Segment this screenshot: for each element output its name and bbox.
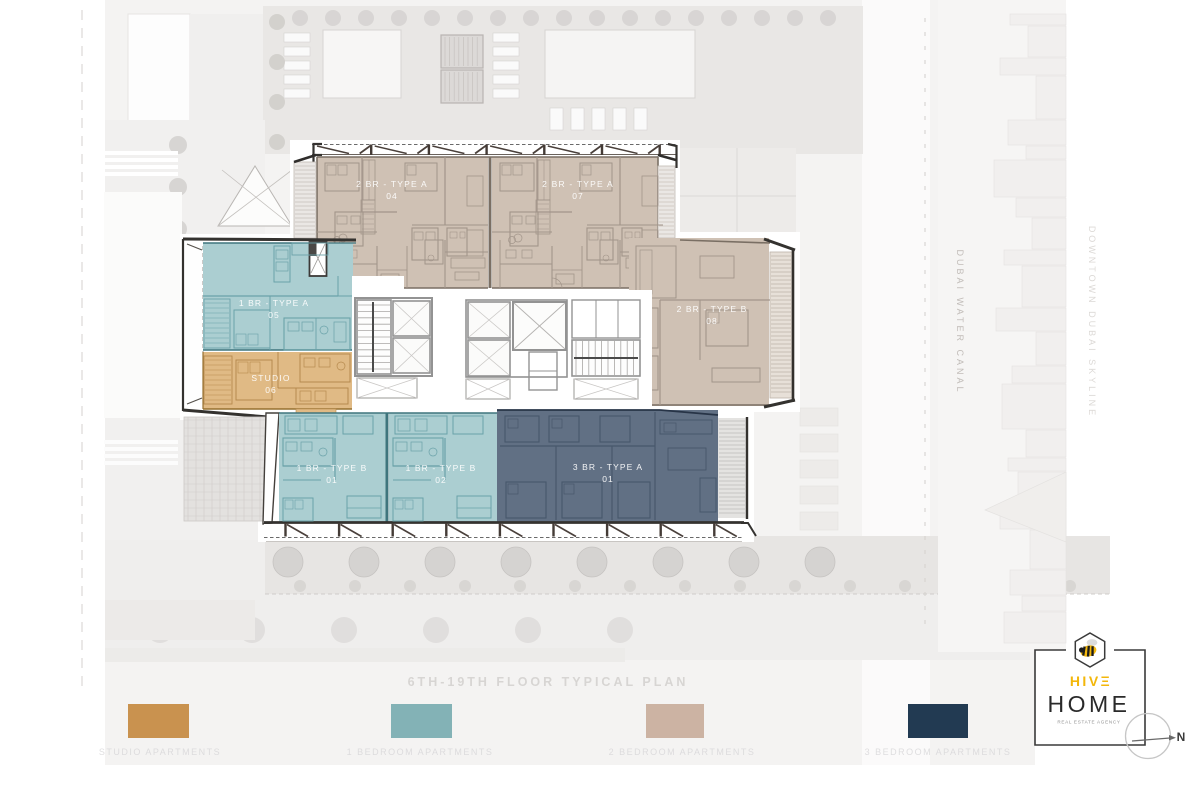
svg-text:DUBAI WATER CANAL: DUBAI WATER CANAL xyxy=(955,249,965,394)
svg-text:05: 05 xyxy=(268,310,279,320)
svg-text:06: 06 xyxy=(265,385,276,395)
svg-text:01: 01 xyxy=(326,475,337,485)
svg-text:07: 07 xyxy=(572,191,583,201)
svg-text:STUDIO APARTMENTS: STUDIO APARTMENTS xyxy=(99,747,221,757)
svg-text:3 BEDROOM APARTMENTS: 3 BEDROOM APARTMENTS xyxy=(865,747,1012,757)
svg-text:6TH-19TH FLOOR TYPICAL PLAN: 6TH-19TH FLOOR TYPICAL PLAN xyxy=(408,675,689,689)
svg-text:04: 04 xyxy=(386,191,397,201)
svg-text:STUDIO: STUDIO xyxy=(251,373,290,383)
svg-text:1 BR - TYPE B: 1 BR - TYPE B xyxy=(297,463,368,473)
svg-text:REAL ESTATE AGENCY: REAL ESTATE AGENCY xyxy=(1057,720,1120,725)
svg-text:HOME: HOME xyxy=(1048,691,1131,717)
svg-text:08: 08 xyxy=(706,316,717,326)
svg-text:2 BR - TYPE A: 2 BR - TYPE A xyxy=(356,179,428,189)
svg-text:1 BR - TYPE A: 1 BR - TYPE A xyxy=(239,298,309,308)
svg-text:1 BR - TYPE B: 1 BR - TYPE B xyxy=(406,463,477,473)
svg-text:3 BR - TYPE A: 3 BR - TYPE A xyxy=(573,462,643,472)
svg-text:02: 02 xyxy=(435,475,446,485)
svg-text:2 BR - TYPE A: 2 BR - TYPE A xyxy=(542,179,614,189)
svg-text:DOWNTOWN DUBAI SKYLINE: DOWNTOWN DUBAI SKYLINE xyxy=(1087,226,1097,418)
svg-text:2 BR - TYPE B: 2 BR - TYPE B xyxy=(677,304,748,314)
svg-text:01: 01 xyxy=(602,474,613,484)
svg-text:N: N xyxy=(1177,730,1186,744)
svg-text:2 BEDROOM APARTMENTS: 2 BEDROOM APARTMENTS xyxy=(609,747,756,757)
svg-text:HIVΞ: HIVΞ xyxy=(1070,673,1112,689)
svg-text:1 BEDROOM APARTMENTS: 1 BEDROOM APARTMENTS xyxy=(347,747,494,757)
